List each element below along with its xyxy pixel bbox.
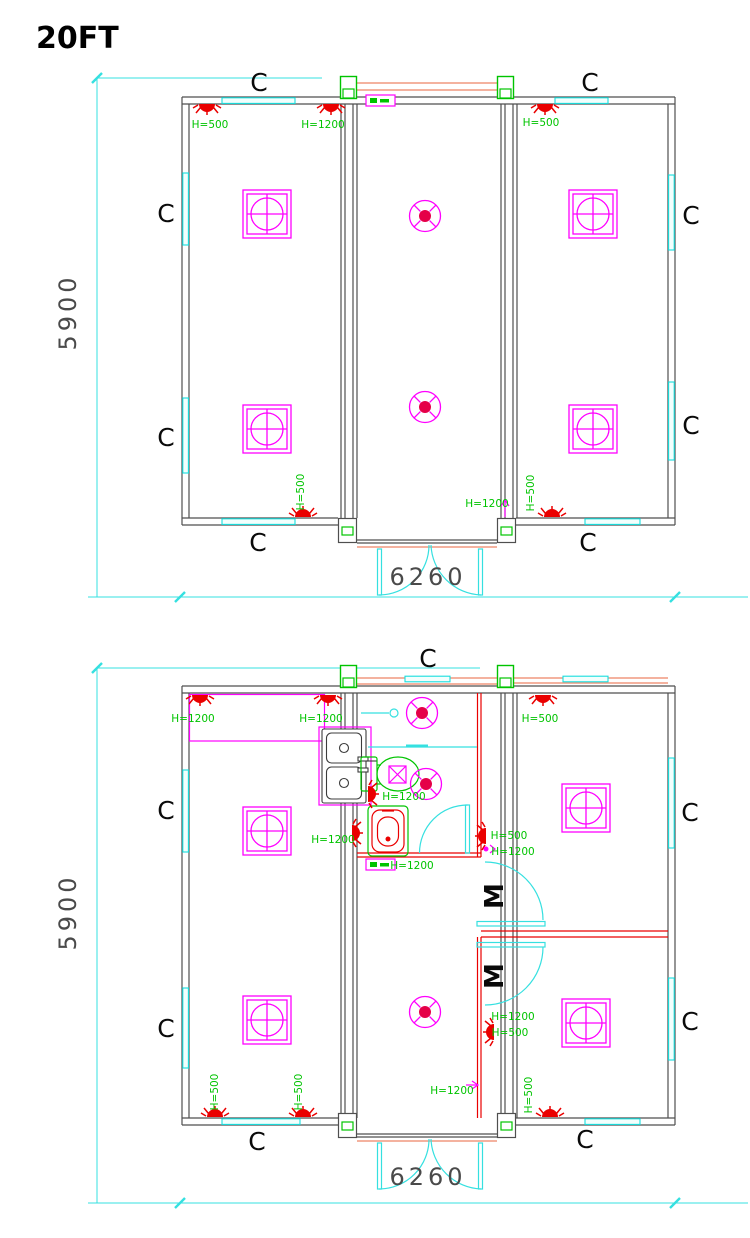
ceiling-light-icon (243, 405, 291, 453)
door-label: M (480, 963, 510, 989)
window-label: C (249, 528, 266, 557)
door-leaf (479, 549, 483, 595)
corner-post-icon (498, 77, 514, 99)
door-label: M (480, 883, 510, 909)
window-label: C (157, 796, 174, 825)
height-dimension: 5900 (54, 273, 82, 350)
mount-height-label: H=500 (492, 1027, 529, 1039)
plan-top-dimension-lines (88, 73, 748, 602)
height-dimension: 5900 (54, 873, 82, 950)
wall-lamp-icon (314, 695, 342, 706)
wash-basin (368, 806, 408, 856)
exhaust-fan-icon (366, 95, 395, 106)
corner-post-icon (341, 666, 357, 688)
window-label: C (579, 528, 596, 557)
door-jamb-icon (498, 519, 516, 543)
window-label: C (581, 68, 598, 97)
ceiling-light-icon (243, 190, 291, 238)
window (669, 175, 675, 250)
plan-bottom: C C C C C C C M M H=1200 H=1200 H=500 H=… (54, 644, 748, 1208)
ceiling-light-icon (243, 807, 291, 855)
fan-light-icon (407, 698, 438, 729)
door-leaf (466, 805, 470, 853)
window (183, 398, 189, 473)
door-leaf (479, 1143, 483, 1189)
mount-height-label: H=1200 (382, 791, 425, 803)
plan-bottom-walls (182, 686, 675, 1137)
mount-height-label: H=1200 (491, 1011, 534, 1023)
ceiling-light-icon (562, 784, 610, 832)
window-label: C (681, 798, 698, 827)
wall-lamp-icon (193, 104, 221, 115)
mount-height-label: H=500 (192, 119, 229, 131)
door-jamb-icon (339, 1114, 357, 1138)
fan-light-icon (410, 392, 441, 423)
ceiling-light-icon (243, 996, 291, 1044)
shower-rail (368, 746, 477, 747)
width-dimension: 6260 (389, 1163, 466, 1191)
door-leaf (477, 922, 545, 927)
window-label: C (681, 1007, 698, 1036)
mount-height-label: H=500 (209, 1074, 221, 1111)
window-label: C (248, 1127, 265, 1156)
mount-height-label: H=1200 (311, 834, 354, 846)
mount-height-label: H=1200 (301, 119, 344, 131)
mount-height-label: H=500 (295, 474, 307, 511)
mount-height-label: H=1200 (430, 1085, 473, 1097)
ceiling-light-icon (569, 190, 617, 238)
cad-drawing-canvas: 20FT (0, 0, 750, 1238)
corner-post-icon (498, 666, 514, 688)
window (222, 98, 295, 104)
window (669, 978, 675, 1060)
fan-light-icon (410, 997, 441, 1028)
window-label: C (157, 423, 174, 452)
bathroom-door (420, 805, 470, 853)
wall-lamp-icon (186, 695, 214, 706)
plan-top: C C C C C C C C H=500 H=1200 H=500 H=120… (54, 68, 748, 602)
mount-height-label: H=1200 (171, 713, 214, 725)
mount-height-label: H=1200 (465, 498, 508, 510)
drawing-title: 20FT (36, 21, 119, 56)
door-jamb-icon (498, 1114, 516, 1138)
wall-lamp-icon (538, 506, 566, 517)
window-label: C (419, 644, 436, 673)
width-dimension: 6260 (389, 563, 466, 591)
window (669, 382, 675, 460)
plan-top-windows (183, 98, 674, 525)
wall-lamp-icon (536, 1106, 564, 1117)
door-leaf (378, 1143, 382, 1189)
fan-light-icon (410, 201, 441, 232)
window-label: C (250, 68, 267, 97)
window (585, 1119, 640, 1125)
window-label: C (682, 411, 699, 440)
window (183, 173, 189, 245)
plan-top-walls (182, 97, 675, 543)
window (222, 1119, 300, 1125)
wall-lamp-icon (531, 104, 559, 115)
window-label: C (157, 199, 174, 228)
window (563, 676, 608, 682)
window (405, 676, 450, 682)
mount-height-label: H=500 (293, 1074, 305, 1111)
mount-height-label: H=500 (523, 117, 560, 129)
window (183, 988, 189, 1068)
ceiling-light-icon (569, 405, 617, 453)
floor-plans-svg: 20FT (0, 0, 750, 1238)
mount-height-label: H=1200 (299, 713, 342, 725)
mount-height-label: H=500 (525, 475, 537, 512)
mount-height-label: H=500 (523, 1077, 535, 1114)
plan-bottom-windows (183, 676, 674, 1124)
light-switch (361, 709, 398, 717)
window (669, 758, 675, 848)
wall-lamp-icon (529, 695, 557, 706)
door-leaf (378, 549, 382, 595)
window (555, 98, 608, 104)
mount-height-label: H=1200 (491, 846, 534, 858)
door-jamb-icon (339, 519, 357, 543)
window (585, 519, 640, 525)
corner-post-icon (341, 77, 357, 99)
window-label: C (576, 1125, 593, 1154)
mount-height-label: H=1200 (390, 860, 433, 872)
plan-top-beam (357, 83, 497, 547)
window-label: C (157, 1014, 174, 1043)
door-leaf (477, 943, 545, 948)
ceiling-light-icon (562, 999, 610, 1047)
window (183, 770, 189, 852)
mount-height-label: H=500 (522, 713, 559, 725)
door-swing-arc (420, 805, 468, 853)
mount-height-label: H=500 (491, 830, 528, 842)
window-label: C (682, 201, 699, 230)
window (222, 519, 295, 525)
